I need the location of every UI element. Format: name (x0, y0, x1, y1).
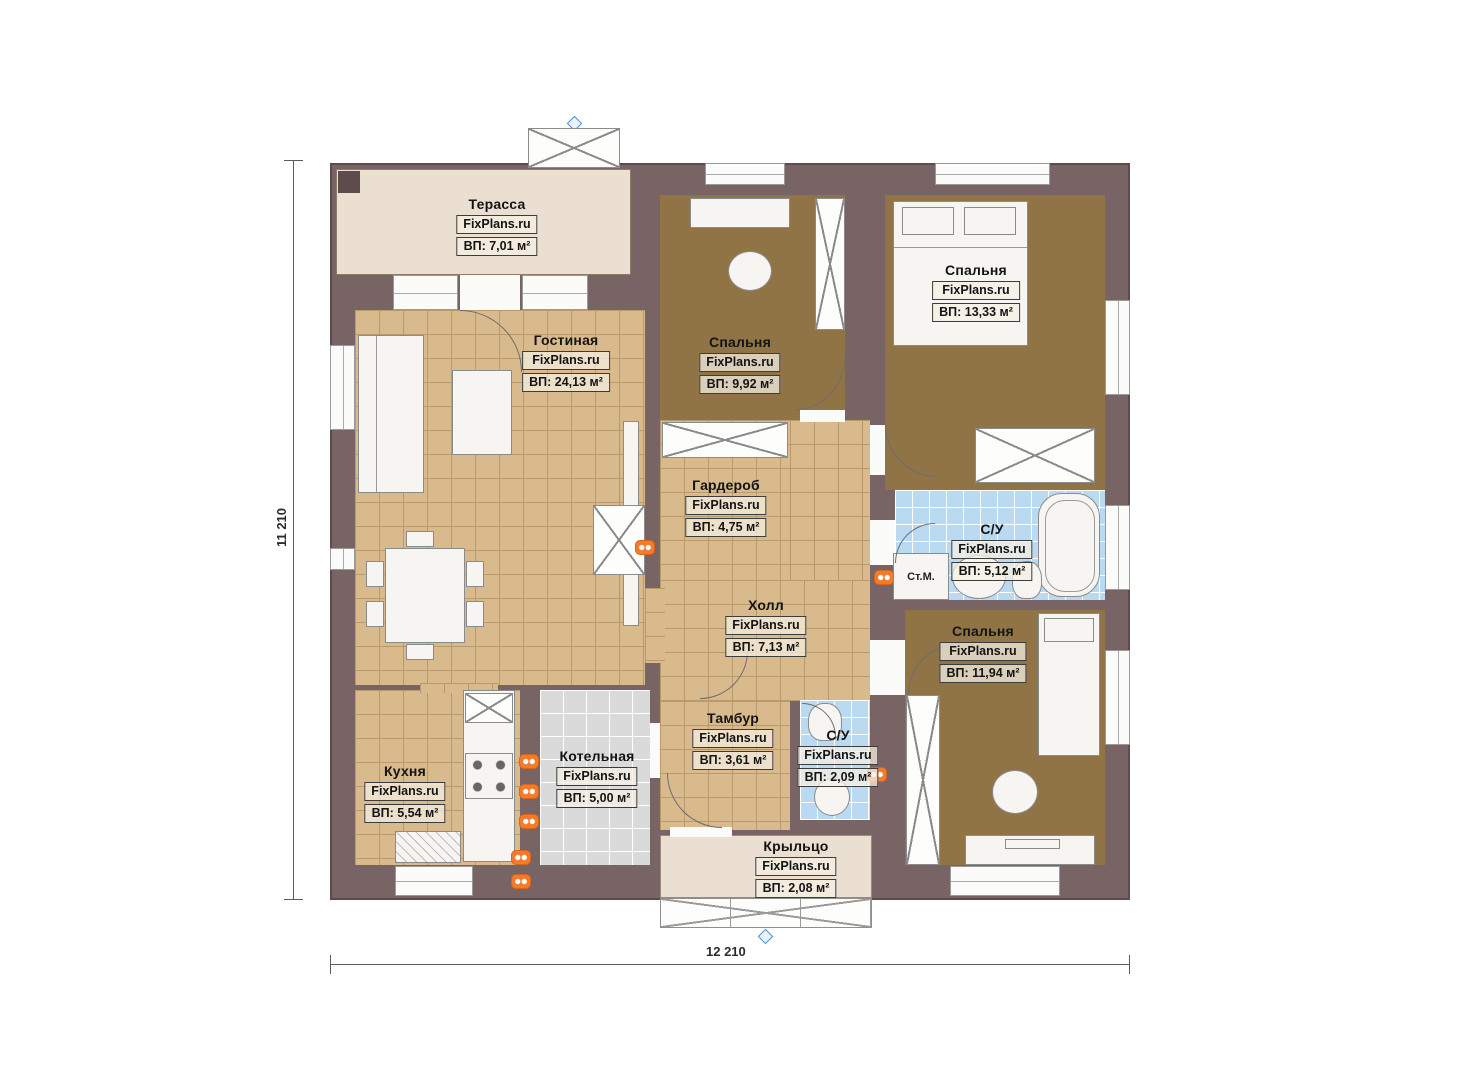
room-name: Терасса (456, 196, 537, 212)
roof-vent (528, 128, 620, 168)
room-name: Котельная (556, 748, 637, 764)
floor-plan-page: Ст.М. Терасса FixPlans.ru ВП: 7,01 м² Го… (0, 0, 1474, 1080)
dimension-tick (330, 955, 331, 974)
room-label-terrace: Терасса FixPlans.ru ВП: 7,01 м² (456, 196, 537, 256)
dining-chair (466, 601, 484, 627)
dimension-tick (1129, 955, 1130, 974)
opening-terrace-door (460, 275, 520, 310)
room-label-living: Гостиная FixPlans.ru ВП: 24,13 м² (522, 332, 610, 392)
sofa-backrest-line (376, 336, 377, 492)
dresser (690, 198, 790, 228)
window-bedroom-3-right (1105, 650, 1130, 745)
room-area: ВП: 2,09 м² (797, 768, 878, 787)
opening-bedroom-1-door (800, 410, 845, 422)
room-label-kitchen: Кухня FixPlans.ru ВП: 5,54 м² (364, 763, 445, 823)
watermark: FixPlans.ru (685, 496, 766, 515)
window-bedroom-3-bottom (950, 866, 1060, 896)
room-name: Спальня (699, 334, 780, 350)
opening-bath-1-door (870, 520, 895, 565)
pillow (964, 207, 1016, 235)
hall-corridor (790, 420, 870, 580)
room-label-tambur: Тамбур FixPlans.ru ВП: 3,61 м² (692, 710, 773, 770)
window-bedroom-2-right (1105, 300, 1130, 395)
room-name: Холл (725, 597, 806, 613)
radiator-living-icon (636, 541, 654, 554)
watermark: FixPlans.ru (939, 642, 1026, 661)
pillow (902, 207, 954, 235)
bathtub-inner (1045, 500, 1095, 592)
room-area: ВП: 4,75 м² (685, 518, 766, 537)
room-label-bath-2: С/У FixPlans.ru ВП: 2,09 м² (797, 727, 878, 787)
dimension-height: 11 210 (274, 508, 289, 547)
room-label-wardrobe: Гардероб FixPlans.ru ВП: 4,75 м² (685, 477, 766, 537)
room-label-porch: Крыльцо FixPlans.ru ВП: 2,08 м² (755, 838, 836, 898)
watermark: FixPlans.ru (951, 540, 1032, 559)
room-area: ВП: 9,92 м² (699, 375, 780, 394)
room-label-bedroom-2: Спальня FixPlans.ru ВП: 13,33 м² (932, 262, 1020, 322)
room-name: Кухня (364, 763, 445, 779)
opening-bedroom-3-door (870, 640, 905, 695)
dining-table (385, 548, 465, 643)
porch-steps (660, 898, 872, 928)
desk-chair (992, 770, 1038, 814)
boiler-radiator-icon (512, 851, 530, 864)
shelving (662, 422, 788, 458)
room-area: ВП: 5,54 м² (364, 804, 445, 823)
stove (465, 753, 513, 799)
dining-chair (366, 601, 384, 627)
watermark: FixPlans.ru (725, 616, 806, 635)
room-name: С/У (951, 521, 1032, 537)
dimension-tick (284, 160, 303, 161)
dining-chair (366, 561, 384, 587)
watermark: FixPlans.ru (556, 767, 637, 786)
room-label-bath-1: С/У FixPlans.ru ВП: 5,12 м² (951, 521, 1032, 581)
dining-chair (466, 561, 484, 587)
watermark: FixPlans.ru (797, 746, 878, 765)
blanket-line (894, 247, 1027, 248)
room-name: Спальня (939, 623, 1026, 639)
room-name: Крыльцо (755, 838, 836, 854)
window-kitchen (395, 866, 473, 896)
room-area: ВП: 7,13 м² (725, 638, 806, 657)
terrace-column (338, 171, 360, 193)
kitchen-sink (395, 831, 461, 863)
window-bedroom-2-top (935, 163, 1050, 185)
armchair (728, 251, 772, 291)
boiler-radiator-icon (520, 815, 538, 828)
room-name: Гостиная (522, 332, 610, 348)
boiler-radiator-icon (512, 875, 530, 888)
room-area: ВП: 11,94 м² (939, 664, 1026, 683)
boiler-radiator-icon (520, 785, 538, 798)
fridge (465, 693, 513, 723)
room-area: ВП: 13,33 м² (932, 303, 1020, 322)
sofa (358, 335, 424, 493)
coffee-table (452, 370, 512, 455)
watermark: FixPlans.ru (522, 351, 610, 370)
watermark: FixPlans.ru (699, 353, 780, 372)
dimension-line-bottom (330, 964, 1130, 965)
wardrobe-bedroom-3 (906, 695, 940, 865)
dining-chair (406, 531, 434, 547)
dimension-tick (284, 899, 303, 900)
room-label-bedroom-3: Спальня FixPlans.ru ВП: 11,94 м² (939, 623, 1026, 683)
room-area: ВП: 3,61 м² (692, 751, 773, 770)
opening-boiler-door (650, 723, 660, 778)
opening-porch-door (670, 827, 732, 837)
window-living-left-small (330, 548, 355, 570)
room-area: ВП: 7,01 м² (456, 237, 537, 256)
window-living-terrace-2 (522, 275, 588, 310)
watermark: FixPlans.ru (932, 281, 1020, 300)
washing-machine-label: Ст.М. (907, 571, 935, 583)
dimension-width: 12 210 (706, 944, 746, 959)
room-name: С/У (797, 727, 878, 743)
opening-bedroom-2-door (870, 425, 885, 475)
room-area: ВП: 24,13 м² (522, 373, 610, 392)
fireplace (593, 505, 645, 575)
dimension-line-left (293, 160, 294, 900)
room-name: Тамбур (692, 710, 773, 726)
window-bedroom-1 (705, 163, 785, 185)
dining-chair (406, 644, 434, 660)
elevation-marker-bottom-icon (758, 929, 774, 945)
window-living-terrace-1 (393, 275, 458, 310)
wardrobe-bedroom-1 (815, 198, 845, 330)
room-name: Гардероб (685, 477, 766, 493)
monitor (1005, 839, 1060, 849)
room-area: ВП: 5,00 м² (556, 789, 637, 808)
watermark: FixPlans.ru (692, 729, 773, 748)
room-label-bedroom-1: Спальня FixPlans.ru ВП: 9,92 м² (699, 334, 780, 394)
boiler-radiator-icon (520, 755, 538, 768)
room-area: ВП: 5,12 м² (951, 562, 1032, 581)
room-label-boiler: Котельная FixPlans.ru ВП: 5,00 м² (556, 748, 637, 808)
window-living-left (330, 345, 355, 430)
pillow (1044, 618, 1094, 642)
watermark: FixPlans.ru (456, 215, 537, 234)
wardrobe-bedroom-2 (975, 428, 1095, 483)
window-bath-1 (1105, 505, 1130, 590)
room-name: Спальня (932, 262, 1020, 278)
watermark: FixPlans.ru (364, 782, 445, 801)
radiator-bath-1-icon (875, 571, 893, 584)
watermark: FixPlans.ru (755, 857, 836, 876)
room-area: ВП: 2,08 м² (755, 879, 836, 898)
room-label-hall: Холл FixPlans.ru ВП: 7,13 м² (725, 597, 806, 657)
opening-living-hall (645, 588, 665, 663)
